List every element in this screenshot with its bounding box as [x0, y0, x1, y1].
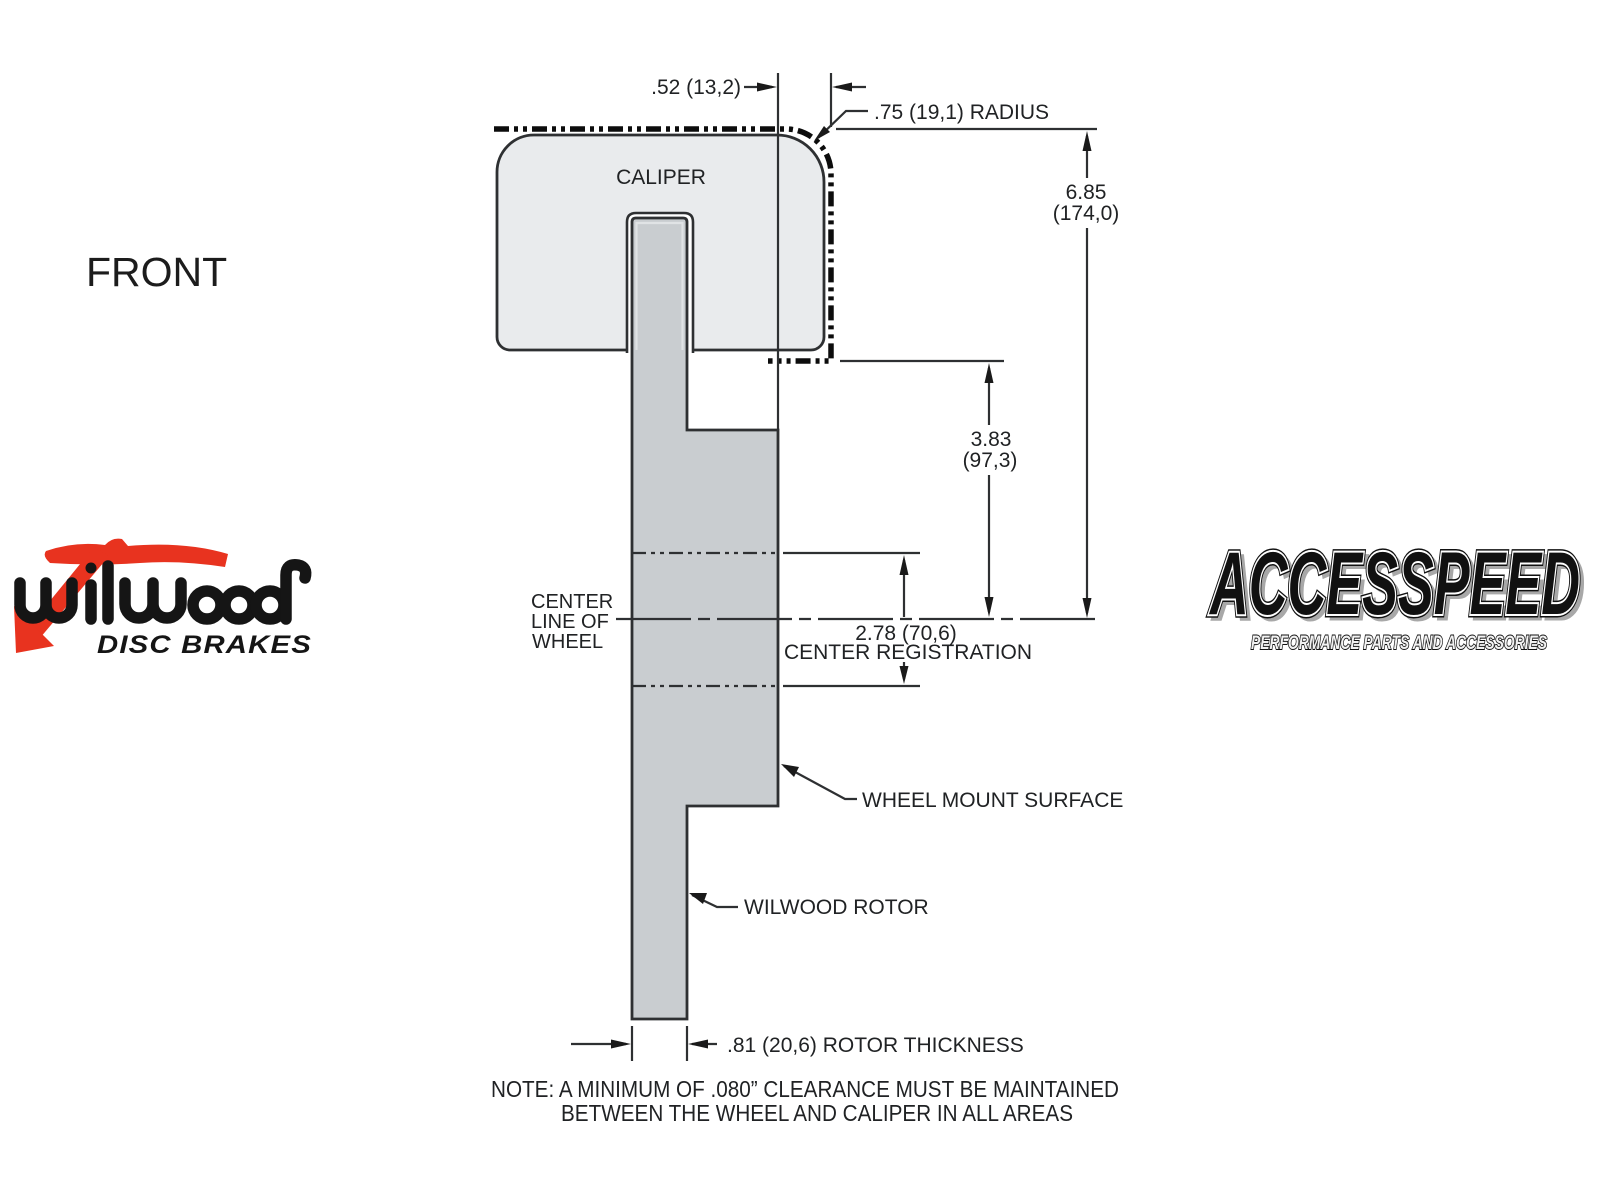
svg-text:.81 (20,6) ROTOR THICKNESS: .81 (20,6) ROTOR THICKNESS [727, 1034, 1024, 1057]
svg-text:.52 (13,2): .52 (13,2) [651, 76, 741, 99]
svg-text:NOTE: A MINIMUM OF .080” CLEAR: NOTE: A MINIMUM OF .080” CLEARANCE MUST … [491, 1076, 1119, 1102]
svg-text:ACCESSPEED: ACCESSPEED [1209, 533, 1580, 633]
svg-text:CENTER REGISTRATION: CENTER REGISTRATION [784, 641, 1032, 664]
svg-text:PERFORMANCE PARTS AND ACCESSOR: PERFORMANCE PARTS AND ACCESSORIES [1251, 632, 1547, 654]
svg-text:CENTER: CENTER [531, 591, 613, 613]
svg-text:3.83: 3.83 [971, 428, 1012, 451]
svg-text:(97,3): (97,3) [963, 449, 1018, 472]
svg-text:BETWEEN THE WHEEL AND CALIPER: BETWEEN THE WHEEL AND CALIPER IN ALL ARE… [561, 1100, 1073, 1126]
svg-text:CALIPER: CALIPER [616, 166, 706, 189]
svg-text:WHEEL: WHEEL [532, 631, 603, 653]
svg-text:6.85: 6.85 [1066, 181, 1107, 204]
svg-text:DISC BRAKES: DISC BRAKES [97, 631, 312, 659]
svg-text:.75 (19,1) RADIUS: .75 (19,1) RADIUS [874, 101, 1049, 124]
svg-text:FRONT: FRONT [86, 249, 227, 295]
svg-text:(174,0): (174,0) [1053, 202, 1120, 225]
svg-text:WHEEL MOUNT SURFACE: WHEEL MOUNT SURFACE [862, 789, 1123, 812]
svg-text:WILWOOD ROTOR: WILWOOD ROTOR [744, 896, 929, 919]
svg-text:LINE OF: LINE OF [531, 611, 609, 633]
